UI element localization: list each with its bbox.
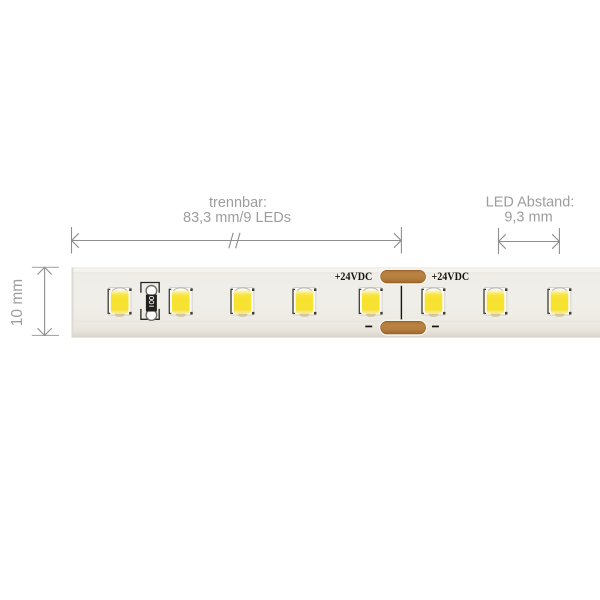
svg-text:LED Abstand:: LED Abstand: xyxy=(486,195,575,211)
svg-text:83,3 mm/9 LEDs: 83,3 mm/9 LEDs xyxy=(183,210,291,226)
svg-text:trennbar:: trennbar: xyxy=(209,195,267,211)
svg-text:+24VDC: +24VDC xyxy=(432,271,470,283)
svg-text:10 mm: 10 mm xyxy=(9,279,26,326)
svg-text:+24VDC: +24VDC xyxy=(335,271,373,283)
svg-text:9,3 mm: 9,3 mm xyxy=(504,209,552,225)
